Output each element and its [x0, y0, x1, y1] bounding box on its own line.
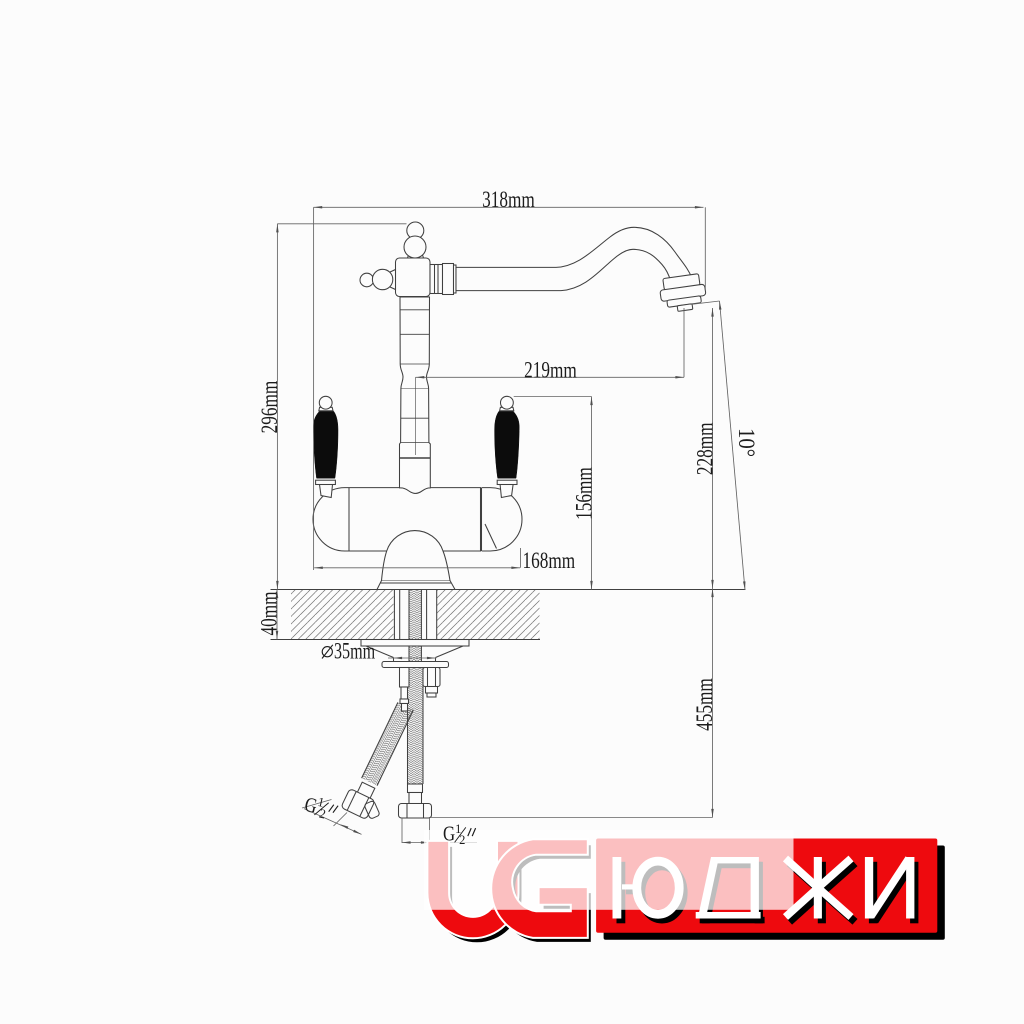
svg-text:156mm: 156mm: [572, 467, 597, 520]
svg-text:10°: 10°: [734, 428, 759, 457]
svg-text:219mm: 219mm: [524, 358, 577, 383]
svg-text:2: 2: [459, 833, 465, 847]
svg-text:35mm: 35mm: [334, 639, 376, 664]
svg-text:228mm: 228mm: [693, 422, 718, 475]
svg-text:296mm: 296mm: [258, 381, 283, 434]
svg-text:G: G: [443, 823, 455, 846]
svg-text:318mm: 318mm: [482, 188, 535, 213]
svg-text:168mm: 168mm: [523, 549, 576, 574]
svg-text:455mm: 455mm: [693, 678, 718, 731]
svg-text:40mm: 40mm: [257, 591, 282, 635]
